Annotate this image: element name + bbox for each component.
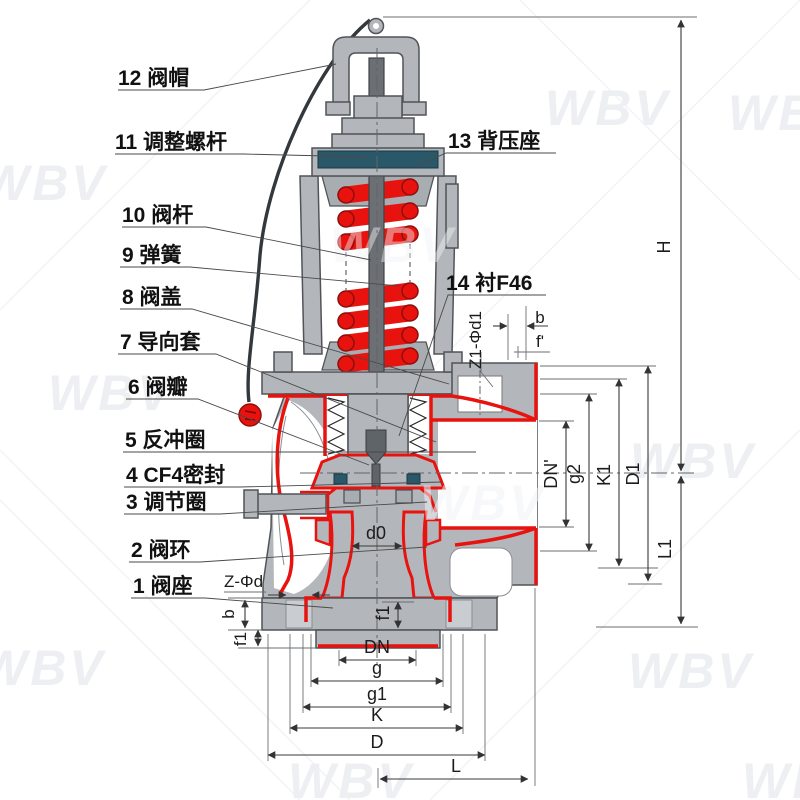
seat-nut-right	[396, 490, 412, 503]
dim-d: D	[371, 732, 384, 752]
watermark: WBV	[288, 753, 414, 800]
dim-dn-prime: DN'	[541, 459, 561, 488]
bonnet-wall-left	[300, 176, 322, 354]
dim-g: g	[372, 658, 382, 678]
part-label-8: 8 阀盖	[122, 285, 182, 309]
seat-nut-left	[344, 490, 360, 503]
lever-foot-left	[326, 102, 350, 115]
dim-b-left: b	[219, 609, 238, 618]
valve-assembly	[239, 19, 537, 649]
watermark: WBV	[628, 643, 754, 699]
part-label-13: 13 背压座	[448, 129, 540, 153]
dim-d1: D1	[623, 462, 643, 485]
dim-k1: K1	[594, 464, 614, 486]
part-label-14: 14 衬F46	[446, 272, 532, 295]
part-label-3: 3 调节圈	[126, 490, 207, 514]
drain-stud-head	[244, 490, 258, 518]
part-label-6: 6 阀瓣	[128, 375, 188, 399]
part-label-1: 1 阀座	[133, 574, 193, 598]
seat-ring	[320, 488, 436, 512]
part-label-10: 10 阀杆	[122, 204, 193, 227]
back-pressure-seat	[318, 151, 438, 168]
watermark: WBV	[330, 217, 456, 273]
lever-eyelet-hole	[373, 23, 379, 29]
body-cavity-lower-right	[450, 548, 512, 596]
part-label-11: 11 调整螺杆	[115, 130, 227, 154]
watermark: WBV	[0, 155, 108, 211]
watermark: WBV	[742, 753, 800, 800]
adjusting-screw-nut	[354, 96, 402, 120]
dim-z1-phi-d1: Z1-Φd1	[466, 311, 485, 369]
part-label-2: 2 阀环	[131, 539, 191, 562]
dim-h: H	[654, 241, 674, 254]
part-label-7: 7 导向套	[120, 330, 201, 354]
dim-f-prime: f'	[536, 332, 544, 351]
part-label-9: 9 弹簧	[122, 243, 182, 267]
lever-foot-right	[402, 102, 426, 115]
dim-l: L	[451, 756, 461, 776]
safety-valve-section-diagram: WBV WBV WBV WBV WBV WBV WBV WBV WBV	[0, 0, 800, 800]
part-label-5: 5 反冲圈	[125, 429, 206, 452]
dim-g1: g1	[367, 684, 387, 704]
stem-rod-end	[372, 464, 380, 486]
dim-dn: DN	[364, 637, 390, 657]
dim-l1: L1	[655, 539, 675, 559]
watermark: WBV	[728, 85, 800, 141]
dim-f1-left: f1	[231, 632, 250, 646]
watermark: WBV	[630, 433, 756, 489]
drain-stud	[250, 494, 326, 514]
watermark: WBV	[0, 640, 106, 696]
dim-b-top: b	[535, 308, 544, 327]
dim-f1-center: f1	[373, 605, 393, 620]
dim-g2: g2	[564, 464, 584, 484]
part-label-12: 12 阀帽	[118, 67, 189, 90]
part-label-4: 4 CF4密封	[126, 463, 225, 487]
adjusting-ring-left	[316, 520, 330, 545]
dim-d0: d0	[366, 523, 386, 543]
dim-z-phi-d: Z-Φd	[224, 572, 263, 591]
bonnet-flange	[262, 372, 464, 394]
valve-drawing-page: WBV WBV WBV WBV WBV WBV WBV WBV WBV	[0, 0, 800, 800]
flange-bolt-left	[274, 352, 292, 372]
watermark: WBV	[545, 80, 671, 136]
watermark: WBV	[420, 475, 546, 531]
dim-k: K	[371, 705, 383, 725]
cf4-seal-left	[334, 474, 347, 484]
lead-seal-disc	[239, 404, 261, 426]
